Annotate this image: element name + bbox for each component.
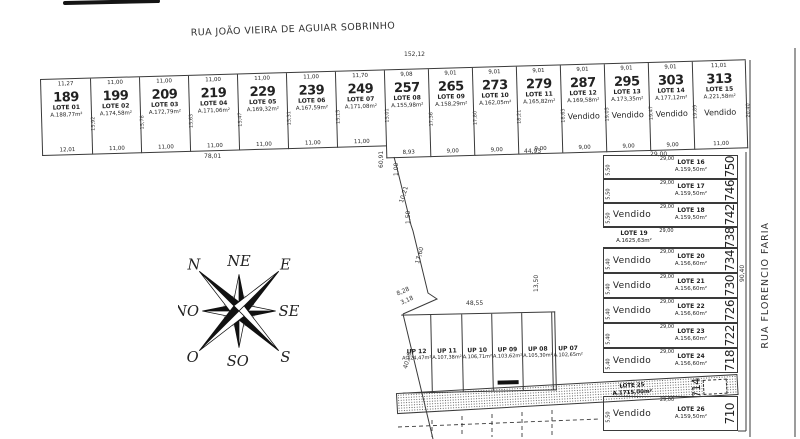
lot-number: 219	[189, 86, 237, 100]
lot-bottom-dimension: 11,00	[695, 140, 747, 147]
lot-label: LOTE 17A.159,50m²	[660, 184, 722, 197]
lot-bottom-dimension: 9,00	[651, 142, 694, 149]
lot-number: 265	[429, 80, 472, 94]
up-lot-block: UP 12A.124,47m²UP 11A.107,38m²UP 10A.106…	[401, 311, 557, 393]
lot-area: A.159,50m²	[660, 414, 722, 420]
lot-bottom-dimension: 11,00	[338, 138, 386, 145]
lot-label: LOTE 18A.159,50m²	[660, 208, 722, 221]
sold-label: Vendido	[604, 306, 660, 316]
lot-number: 189	[41, 91, 90, 105]
dashed-lot-line	[398, 419, 600, 427]
up-lot-cell: UP 09A.103,62m²	[491, 313, 523, 391]
lot-street-number: 738	[722, 227, 737, 248]
lot-area: A.174,58m²	[92, 110, 140, 117]
sold-label: Vendido	[606, 110, 649, 120]
lot-top-dimension: 9,01	[473, 69, 516, 76]
compass-label-n: N	[186, 257, 201, 274]
lot-top-dimension: 11,70	[336, 72, 384, 79]
lot-cell: 11,00219LOTE 04A.171,06m²11,0015,47	[188, 74, 239, 151]
lot-area: A.165,82m²	[518, 98, 561, 105]
lot-top-dimension: 9,01	[605, 65, 648, 72]
lot-cell: 9,01303LOTE 14A.177,12m²Vendido9,0019,89	[648, 62, 694, 151]
compass-label-se: SE	[279, 303, 300, 320]
dimension-label: 152,12	[404, 52, 425, 58]
lot-street-number: 734	[722, 250, 737, 271]
compass-label-no: NO	[178, 303, 199, 320]
lot-label: LOTE 22A.156,60m²	[660, 304, 722, 317]
lot-cell: 11,27189LOTE 01A.188,77m²12,0115,92	[40, 79, 92, 156]
lot-cell: 9,08257LOTE 08A.155,98m²8,9317,36	[384, 69, 430, 158]
lot-row: 29,00LOTE 16A.159,50m²5,50750	[603, 155, 738, 179]
subdivision-plan: RUA JOÃO VIEIRA DE AGUIAR SOBRINHO 11,27…	[0, 0, 800, 439]
lot-area: A.156,60m²	[660, 311, 722, 317]
lot-number: 313	[693, 72, 745, 86]
lot-number: 279	[517, 77, 560, 91]
row-width-dimension: 29,00	[660, 249, 674, 255]
compass-label-o: O	[187, 349, 199, 366]
lot-number: 295	[605, 75, 648, 89]
street-name-right: RUA FLORENCIO FARIA	[760, 222, 771, 349]
lot-cell: 11,01313LOTE 15A.221,58m²Vendido11,0020,…	[692, 60, 748, 149]
lot-cell: 9,01265LOTE 09A.158,29m²9,0017,80	[428, 68, 474, 157]
lot-top-dimension: 11,00	[238, 75, 286, 82]
lot-street-number: 714	[689, 378, 704, 398]
lot-area: A.173,35m²	[606, 96, 649, 103]
lot-area: A.106,71m²	[463, 354, 492, 360]
lot-area: A.105,30m²	[523, 353, 552, 359]
compass-label-s: S	[280, 349, 290, 366]
dimension-label: 48,55	[466, 301, 483, 307]
sold-label: Vendido	[562, 111, 605, 121]
lot-name: LOTE 19	[603, 231, 665, 238]
row-side-dimension: 5,50	[606, 412, 612, 423]
filled-marker	[498, 380, 519, 384]
dimension-label: 17,60	[415, 246, 426, 264]
lot-top-dimension: 9,01	[649, 64, 692, 71]
lot-number: 199	[91, 89, 139, 103]
lot-top-dimension: 11,00	[287, 74, 335, 81]
lot-row: 29,00LOTE 19A.1625,63m²6,00738	[603, 227, 738, 248]
lot-area: A.155,98m²	[386, 102, 429, 109]
sold-label: Vendido	[694, 107, 746, 117]
compass-label-e: E	[279, 257, 291, 274]
lot-number: 229	[238, 85, 286, 99]
lot-bottom-dimension: 11,00	[93, 145, 141, 152]
dimension-label: 3,18	[400, 296, 415, 307]
lot-top-dimension: 11,00	[91, 79, 139, 86]
lot-label: LOTE 24A.156,60m²	[660, 354, 722, 367]
up-lot-cell: UP 07A.102,65m²	[552, 312, 584, 390]
sold-label: Vendido	[650, 108, 693, 118]
row-side-dimension: 5,40	[606, 358, 612, 369]
lot-area: A.102,65m²	[554, 352, 583, 358]
lot-top-dimension: 11,27	[41, 81, 90, 88]
top-lot-row: 11,27189LOTE 01A.188,77m²12,0115,9211,00…	[40, 59, 748, 168]
lot-cell: 11,00199LOTE 02A.174,58m²11,0015,78	[90, 77, 141, 154]
up-lot-cell: UP 08A.105,30m²	[521, 312, 553, 390]
lot-area: A.171,08m²	[337, 103, 385, 110]
lot-area: A.169,58m²	[562, 97, 605, 104]
compass-label-so: SO	[227, 353, 249, 370]
lot-area: A.171,06m²	[190, 107, 238, 114]
compass-label-ne: NE	[226, 253, 251, 270]
sold-label: Vendido	[604, 281, 660, 291]
lot-cell: 11,00209LOTE 03A.172,79m²11,0015,63	[139, 76, 190, 153]
dimension-label: 10,21	[399, 186, 410, 204]
lot-area: A.1625,63m²	[603, 238, 665, 244]
lot-cell: 11,00239LOTE 06A.167,59m²11,0015,15	[286, 72, 337, 149]
lot-bottom-dimension: 12,01	[43, 147, 92, 154]
lot-label: LOTE 20A.156,60m²	[660, 254, 722, 267]
lot-label: LOTE 21A.156,60m²	[660, 279, 722, 292]
sold-label: Vendido	[604, 256, 660, 266]
lot-cell: 11,00229LOTE 05A.169,32m²11,0015,31	[237, 73, 288, 150]
lot-row: 29,00VendidoLOTE 20A.156,60m²5,40734	[603, 248, 738, 273]
lot-label: LOTE 26A.159,50m²	[660, 407, 722, 420]
lot-area: A.188,77m²	[42, 111, 91, 118]
lot-area: A.159,50m²	[660, 191, 722, 197]
lot-row: 29,00VendidoLOTE 24A.156,60m²5,40718	[603, 348, 738, 373]
lot-area: A.107,38m²	[432, 355, 461, 361]
lot-area: A.172,79m²	[141, 108, 189, 115]
lot-row: 29,00VendidoLOTE 18A.159,50m²5,50742	[603, 203, 738, 227]
lot-label: LOTE 23A.156,60m²	[660, 329, 722, 342]
compass-rose: N NE E SE S SO O NO	[178, 250, 300, 372]
lot-street-number: 726	[722, 300, 737, 321]
lot-cell: 9,01295LOTE 13A.173,35m²Vendido9,0019,47	[604, 63, 650, 152]
dimension-label: 1,00	[394, 163, 400, 176]
lot-bottom-dimension: 11,00	[191, 142, 239, 149]
lot-top-dimension: 9,01	[517, 67, 560, 74]
lot-top-dimension: 9,01	[429, 70, 472, 77]
row-width-dimension: 29,00	[660, 324, 674, 330]
lot-area: A.169,32m²	[239, 106, 287, 113]
up-lot-cell: UP 11A.107,38m²	[431, 314, 463, 392]
dimension-label: 90,40	[740, 265, 746, 282]
lot-cell: 9,01279LOTE 11A.165,82m²9,0018,63	[516, 65, 562, 154]
lot-row: 29,00LOTE 17A.159,50m²5,50746	[603, 179, 738, 203]
lot-street-number: 742	[722, 204, 737, 225]
lot-cell: 9,01287LOTE 12A.169,58m²Vendido9,0019,05	[560, 64, 606, 153]
lot-number: 273	[473, 79, 516, 93]
lot-street-number: 746	[722, 180, 737, 201]
up-lot-cell: UP 10A.106,71m²	[461, 314, 493, 392]
lot-area: A.156,60m²	[660, 336, 722, 342]
lot-row: 29,00LOTE 23A.156,60m²5,40722	[603, 323, 738, 348]
row-side-dimension: 5,40	[606, 258, 612, 269]
lot-number: 287	[561, 76, 604, 90]
lot-name: LOTE 26	[660, 407, 722, 414]
dimension-label: 1,50	[406, 211, 412, 224]
lot-bottom-dimension: 8,93	[387, 149, 430, 156]
lot-street-number: 750	[722, 156, 737, 177]
lot-street-number: 710	[722, 403, 737, 424]
lot-number: 209	[140, 88, 188, 102]
lot-bottom-dimension: 9,00	[475, 147, 518, 154]
lot-area: A.156,60m²	[660, 261, 722, 267]
row-side-dimension: 5,50	[606, 165, 612, 176]
lot-row: 29,00VendidoLOTE 21A.156,60m²5,40730	[603, 273, 738, 298]
row-side-dimension: 5,40	[606, 283, 612, 294]
lot-number: 249	[336, 82, 384, 96]
lot-area: A.156,60m²	[660, 361, 722, 367]
border-mark	[63, 0, 160, 5]
sold-label: Vendido	[604, 356, 660, 366]
lot-area: A.158,29m²	[430, 101, 473, 108]
lot-street-number: 718	[722, 350, 737, 371]
street-name-top: RUA JOÃO VIEIRA DE AGUIAR SOBRINHO	[168, 20, 418, 40]
lot-area: A.159,50m²	[660, 215, 722, 221]
row-width-dimension: 29,00	[660, 274, 674, 280]
lot-area: A.156,60m²	[660, 286, 722, 292]
dimension-label: 60,91	[379, 151, 385, 168]
lot-label: LOTE 19A.1625,63m²	[603, 231, 665, 244]
lot-top-dimension: 9,01	[561, 66, 604, 73]
lot-top-dimension: 11,01	[693, 62, 745, 69]
lot-row: 29,00VendidoLOTE 22A.156,60m²5,40726	[603, 298, 738, 323]
lot-street-number: 722	[722, 325, 737, 346]
lot-top-dimension: 11,00	[140, 78, 188, 85]
sold-label: Vendido	[604, 409, 660, 419]
lot-label: LOTE 16A.159,50m²	[660, 160, 722, 173]
lot-area: A.103,62m²	[493, 354, 522, 360]
dimension-label: 29,00	[650, 152, 667, 158]
lot-street-number: 730	[722, 275, 737, 296]
row-side-dimension: 5,50	[606, 213, 612, 224]
dimension-label: 13,50	[534, 275, 540, 292]
row-side-dimension: 5,50	[606, 189, 612, 200]
lot-bottom-dimension: 9,00	[563, 144, 606, 151]
lot-bottom-dimension: 9,00	[431, 148, 474, 155]
row-width-dimension: 29,00	[660, 349, 674, 355]
lot-side-dimension: 20,40	[745, 103, 751, 117]
lot-area: A.159,50m²	[660, 167, 722, 173]
lot-top-dimension: 11,00	[189, 76, 237, 83]
lot-cell: 11,70249LOTE 07A.171,08m²11,0015,01	[335, 70, 386, 147]
row-width-dimension: 29,00	[660, 299, 674, 305]
lot-top-dimension: 9,08	[385, 71, 428, 78]
sold-label: Vendido	[604, 210, 660, 220]
dimension-label: 78,01	[204, 154, 221, 160]
lot-number: 257	[385, 81, 428, 95]
row-side-dimension: 5,40	[606, 333, 612, 344]
lot-area: A.221,58m²	[694, 93, 746, 100]
lot-area: A.177,12m²	[650, 94, 693, 101]
lot-area: A.167,59m²	[288, 104, 336, 111]
lot-area: A.1715,00m²	[612, 388, 652, 396]
lot-number: 239	[287, 84, 335, 98]
dimension-label: 44,93	[524, 149, 541, 155]
lot-bottom-dimension: 11,00	[142, 144, 190, 151]
lot-bottom-dimension: 11,00	[240, 141, 288, 148]
lot-label: LOTE 25 A.1715,00m²	[602, 381, 663, 398]
lot-bottom-dimension: 9,00	[607, 143, 650, 150]
lot-area: A.162,05m²	[474, 99, 517, 106]
lot-cell: 9,01273LOTE 10A.162,05m²9,0018,21	[472, 67, 518, 156]
row-side-dimension: 5,40	[606, 308, 612, 319]
lot-bottom-dimension: 11,00	[289, 140, 337, 147]
lot-number: 303	[649, 74, 692, 88]
utility-box	[703, 379, 728, 395]
